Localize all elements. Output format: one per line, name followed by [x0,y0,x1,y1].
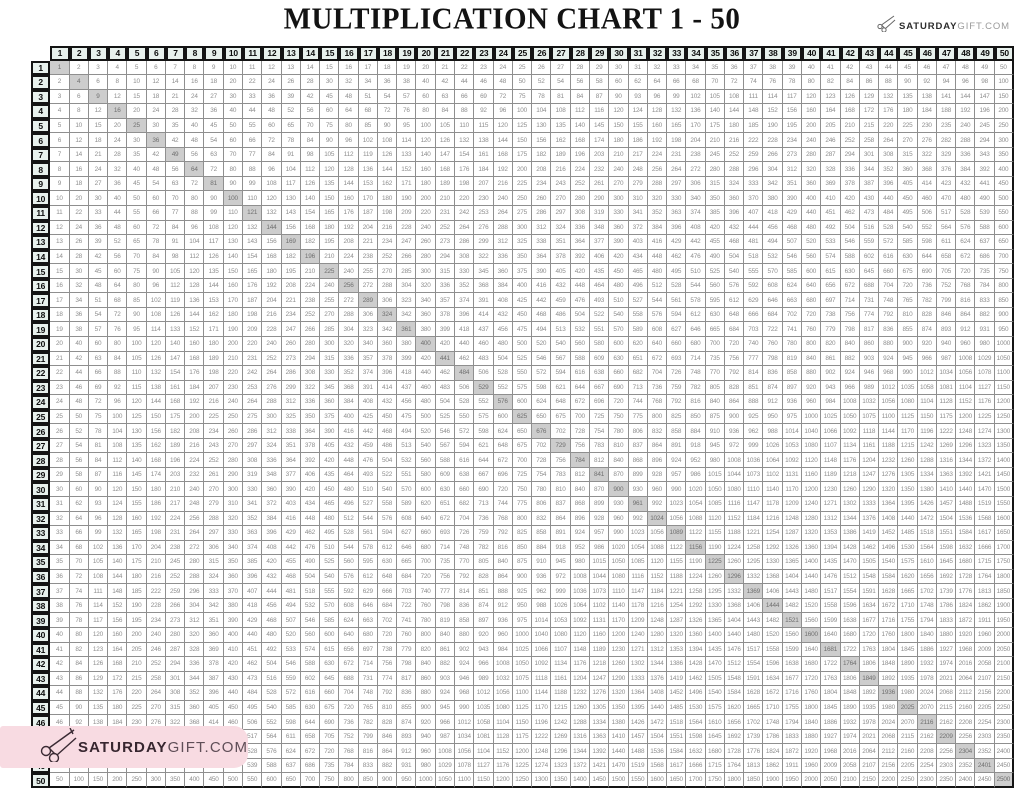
product-cell: 144 [147,395,166,410]
product-cell: 286 [243,424,262,439]
product-cell: 1617 [667,759,686,774]
product-cell: 448 [301,512,320,527]
product-cell: 713 [474,497,493,512]
product-cell: 868 [571,497,590,512]
product-cell: 180 [224,308,243,323]
product-cell: 1225 [706,555,725,570]
product-cell: 10 [70,119,89,134]
product-cell: 992 [629,512,648,527]
product-cell: 1677 [860,613,879,628]
product-cell: 651 [436,497,455,512]
product-cell: 966 [436,715,455,730]
product-cell: 1056 [956,366,975,381]
product-cell: 924 [667,453,686,468]
product-cell: 1080 [898,395,917,410]
product-cell: 891 [667,439,686,454]
product-cell: 216 [551,162,570,177]
product-cell: 148 [108,584,127,599]
product-cell: 989 [860,381,879,396]
product-cell: 384 [648,221,667,236]
product-cell: 550 [243,773,262,788]
product-cell: 47 [937,61,956,76]
product-cell: 189 [204,352,223,367]
product-cell: 1218 [590,657,609,672]
product-cell: 552 [918,221,937,236]
product-cell: 1155 [706,526,725,541]
product-cell: 9 [204,61,223,76]
product-cell: 396 [243,570,262,585]
product-cell: 630 [609,352,628,367]
product-cell: 176 [339,206,358,221]
product-cell: 58 [590,75,609,90]
product-cell: 1911 [975,613,994,628]
product-cell: 564 [262,730,281,745]
product-cell: 840 [416,657,435,672]
product-cell: 312 [282,395,301,410]
product-cell: 450 [204,773,223,788]
product-cell: 130 [282,191,301,206]
product-cell: 50 [995,61,1014,76]
product-cell: 200 [127,628,146,643]
product-cell: 1316 [571,730,590,745]
product-cell: 87 [89,468,108,483]
product-cell: 416 [339,424,358,439]
product-cell: 120 [224,221,243,236]
product-cell: 14 [70,148,89,163]
product-cell: 2450 [995,759,1014,774]
product-cell: 703 [397,584,416,599]
product-cell: 810 [898,308,917,323]
product-cell: 680 [686,337,705,352]
product-cell: 1862 [763,759,782,774]
product-cell: 725 [513,468,532,483]
product-cell: 585 [783,264,802,279]
product-cell: 252 [147,657,166,672]
product-cell: 144 [262,221,281,236]
product-cell: 484 [879,206,898,221]
product-cell: 615 [821,264,840,279]
product-cell: 13 [282,61,301,76]
product-cell: 1650 [667,773,686,788]
product-cell: 155 [127,497,146,512]
product-cell: 234 [532,177,551,192]
product-cell: 990 [898,366,917,381]
product-cell: 81 [89,439,108,454]
product-cell: 1470 [609,759,628,774]
product-cell: 48 [956,61,975,76]
product-cell: 28 [571,61,590,76]
product-cell: 1078 [975,366,994,381]
product-cell: 1392 [956,468,975,483]
product-cell: 1440 [725,628,744,643]
product-cell: 1450 [995,468,1014,483]
product-cell: 462 [455,352,474,367]
product-cell: 1363 [937,468,956,483]
product-cell: 24 [494,61,513,76]
product-cell: 1480 [744,628,763,643]
product-cell: 128 [108,512,127,527]
product-cell: 135 [89,701,108,716]
product-cell: 812 [590,453,609,468]
product-cell: 1406 [763,584,782,599]
product-cell: 260 [224,424,243,439]
product-cell: 374 [243,541,262,556]
product-cell: 1218 [841,468,860,483]
product-cell: 300 [224,482,243,497]
product-cell: 306 [204,541,223,556]
product-cell: 1392 [590,744,609,759]
product-cell: 150 [995,90,1014,105]
product-cell: 348 [590,221,609,236]
product-cell: 1296 [551,744,570,759]
product-cell: 162 [378,177,397,192]
product-cell: 874 [474,599,493,614]
product-cell: 1350 [995,439,1014,454]
col-header: 27 [551,46,570,61]
logo-text-light: GIFT.COM [957,21,1010,32]
product-cell: 759 [474,526,493,541]
row-header: 20 [31,337,50,352]
product-cell: 1085 [706,497,725,512]
product-cell: 1034 [455,730,474,745]
product-cell: 143 [282,206,301,221]
product-cell: 105 [320,148,339,163]
product-cell: 1122 [667,541,686,556]
product-cell: 943 [474,643,493,658]
product-cell: 899 [629,468,648,483]
product-cell: 484 [243,686,262,701]
product-cell: 110 [224,206,243,221]
product-cell: 88 [185,206,204,221]
product-cell: 1862 [975,599,994,614]
product-cell: 768 [648,395,667,410]
product-cell: 984 [494,643,513,658]
product-cell: 21 [436,61,455,76]
product-cell: 192 [147,512,166,527]
product-cell: 1932 [918,657,937,672]
product-cell: 522 [590,308,609,323]
product-cell: 156 [783,104,802,119]
product-cell: 75 [320,119,339,134]
product-cell: 306 [686,177,705,192]
product-cell: 658 [937,250,956,265]
product-cell: 1554 [841,584,860,599]
product-cell: 72 [108,308,127,323]
product-cell: 144 [956,90,975,105]
product-cell: 1936 [879,686,898,701]
product-cell: 1250 [513,773,532,788]
product-cell: 846 [937,308,956,323]
product-cell: 69 [89,381,108,396]
product-cell: 336 [301,395,320,410]
product-cell: 1056 [667,512,686,527]
product-cell: 1716 [783,686,802,701]
product-cell: 1056 [879,395,898,410]
product-cell: 1200 [609,628,628,643]
product-cell: 464 [590,279,609,294]
product-cell: 180 [725,119,744,134]
product-cell: 203 [590,148,609,163]
product-cell: 748 [455,541,474,556]
product-cell: 990 [455,701,474,716]
product-cell: 903 [860,352,879,367]
product-cell: 450 [224,701,243,716]
product-cell: 1050 [436,773,455,788]
product-cell: 245 [706,148,725,163]
product-cell: 196 [301,250,320,265]
product-cell: 750 [513,482,532,497]
product-cell: 874 [918,322,937,337]
product-cell: 180 [378,191,397,206]
product-cell: 806 [532,497,551,512]
product-cell: 92 [918,75,937,90]
product-cell: 1161 [551,672,570,687]
product-cell: 540 [898,221,917,236]
product-cell: 174 [147,468,166,483]
product-cell: 100 [127,337,146,352]
product-cell: 481 [282,584,301,599]
product-cell: 540 [725,264,744,279]
product-cell: 456 [494,322,513,337]
product-cell: 4 [50,104,69,119]
product-cell: 884 [686,424,705,439]
product-cell: 1073 [590,584,609,599]
product-cell: 10 [50,191,69,206]
product-cell: 504 [841,221,860,236]
product-cell: 1848 [841,686,860,701]
product-cell: 432 [725,221,744,236]
product-cell: 759 [667,381,686,396]
product-cell: 30 [89,191,108,206]
product-cell: 180 [416,177,435,192]
product-cell: 248 [185,497,204,512]
product-cell: 1292 [686,599,705,614]
product-cell: 1131 [590,613,609,628]
product-cell: 11 [243,61,262,76]
product-cell: 2401 [975,759,994,774]
product-cell: 261 [590,177,609,192]
product-cell: 1764 [725,759,744,774]
product-cell: 720 [609,395,628,410]
product-cell: 112 [185,250,204,265]
product-cell: 928 [648,468,667,483]
product-cell: 217 [629,148,648,163]
product-cell: 4 [108,61,127,76]
product-cell: 294 [975,133,994,148]
row-header: 15 [31,264,50,279]
product-cell: 1290 [860,482,879,497]
product-cell: 170 [127,541,146,556]
product-cell: 492 [821,221,840,236]
product-cell: 805 [706,381,725,396]
product-cell: 480 [339,482,358,497]
product-cell: 1400 [706,628,725,643]
product-cell: 136 [108,541,127,556]
product-cell: 64 [648,75,667,90]
product-cell: 1462 [860,541,879,556]
product-cell: 24 [50,395,69,410]
product-cell: 806 [629,424,648,439]
product-cell: 2100 [841,773,860,788]
product-cell: 30 [320,75,339,90]
product-cell: 90 [204,191,223,206]
product-cell: 38 [50,599,69,614]
product-cell: 1008 [436,744,455,759]
product-cell: 1394 [821,541,840,556]
product-cell: 702 [551,424,570,439]
product-cell: 12 [50,221,69,236]
product-cell: 296 [744,162,763,177]
product-cell: 154 [301,206,320,221]
product-cell: 1715 [706,759,725,774]
product-cell: 56 [108,250,127,265]
product-cell: 451 [243,643,262,658]
col-header: 8 [185,46,204,61]
product-cell: 1160 [802,468,821,483]
col-header: 30 [609,46,628,61]
product-cell: 1584 [879,570,898,585]
product-cell: 192 [648,133,667,148]
product-cell: 36 [50,570,69,585]
product-cell: 696 [494,468,513,483]
product-cell: 308 [301,366,320,381]
product-cell: 704 [648,366,667,381]
product-cell: 16 [50,279,69,294]
product-cell: 119 [166,293,185,308]
product-cell: 1400 [571,773,590,788]
product-cell: 280 [166,628,185,643]
product-cell: 496 [339,497,358,512]
product-cell: 150 [224,264,243,279]
product-cell: 735 [436,555,455,570]
product-cell: 91 [282,148,301,163]
product-cell: 820 [821,337,840,352]
col-header: 11 [243,46,262,61]
product-cell: 253 [474,206,493,221]
product-cell: 216 [147,570,166,585]
product-cell: 1558 [821,599,840,614]
product-cell: 855 [898,322,917,337]
product-cell: 882 [378,759,397,774]
product-cell: 369 [204,643,223,658]
product-cell: 2068 [937,686,956,701]
product-cell: 56 [301,104,320,119]
product-cell: 1280 [648,628,667,643]
product-cell: 36 [70,308,89,323]
product-cell: 528 [494,366,513,381]
product-cell: 406 [590,250,609,265]
product-cell: 720 [725,337,744,352]
product-cell: 216 [378,221,397,236]
product-cell: 660 [879,264,898,279]
product-cell: 84 [841,75,860,90]
product-cell: 476 [301,541,320,556]
product-cell: 722 [763,322,782,337]
product-cell: 49 [975,61,994,76]
product-cell: 880 [879,337,898,352]
product-cell: 86 [70,672,89,687]
product-cell: 104 [108,424,127,439]
product-cell: 319 [590,206,609,221]
row-header: 27 [31,439,50,454]
product-cell: 987 [937,352,956,367]
product-cell: 62 [70,497,89,512]
product-cell: 130 [224,235,243,250]
product-cell: 1786 [937,599,956,614]
product-cell: 782 [686,381,705,396]
product-cell: 80 [108,337,127,352]
product-cell: 855 [397,701,416,716]
product-cell: 630 [706,308,725,323]
product-cell: 468 [725,235,744,250]
product-cell: 324 [551,221,570,236]
product-cell: 216 [204,395,223,410]
product-cell: 1175 [513,730,532,745]
product-cell: 1920 [802,744,821,759]
product-cell: 672 [571,395,590,410]
product-cell: 120 [320,162,339,177]
product-cell: 1075 [860,410,879,425]
product-cell: 1148 [571,643,590,658]
product-cell: 2500 [995,773,1014,788]
product-cell: 192 [262,279,281,294]
product-cell: 1247 [590,672,609,687]
product-cell: 252 [841,133,860,148]
product-cell: 1015 [706,468,725,483]
product-cell: 1505 [860,555,879,570]
product-cell: 646 [763,293,782,308]
product-cell: 42 [166,133,185,148]
product-cell: 108 [378,133,397,148]
product-cell: 546 [532,352,551,367]
product-cell: 114 [763,90,782,105]
product-cell: 522 [378,468,397,483]
product-cell: 8 [50,162,69,177]
product-cell: 64 [339,104,358,119]
product-cell: 434 [629,250,648,265]
product-cell: 342 [378,322,397,337]
product-cell: 352 [185,686,204,701]
product-cell: 162 [551,133,570,148]
product-cell: 18 [378,61,397,76]
product-cell: 285 [397,264,416,279]
product-cell: 456 [397,395,416,410]
product-cell: 1036 [571,584,590,599]
row-header: 11 [31,206,50,221]
product-cell: 154 [243,250,262,265]
product-cell: 1032 [860,395,879,410]
product-cell: 1092 [841,424,860,439]
product-cell: 1776 [956,584,975,599]
product-cell: 408 [686,221,705,236]
product-cell: 925 [744,410,763,425]
product-cell: 736 [474,512,493,527]
product-cell: 208 [532,162,551,177]
product-cell: 924 [436,686,455,701]
product-cell: 11 [50,206,69,221]
product-cell: 495 [243,701,262,716]
row-header: 18 [31,308,50,323]
product-cell: 480 [416,395,435,410]
product-cell: 418 [455,322,474,337]
product-cell: 1050 [841,410,860,425]
product-cell: 2300 [918,773,937,788]
row-header: 13 [31,235,50,250]
product-cell: 45 [50,701,69,716]
product-cell: 100 [224,191,243,206]
product-cell: 690 [474,482,493,497]
product-cell: 266 [763,148,782,163]
